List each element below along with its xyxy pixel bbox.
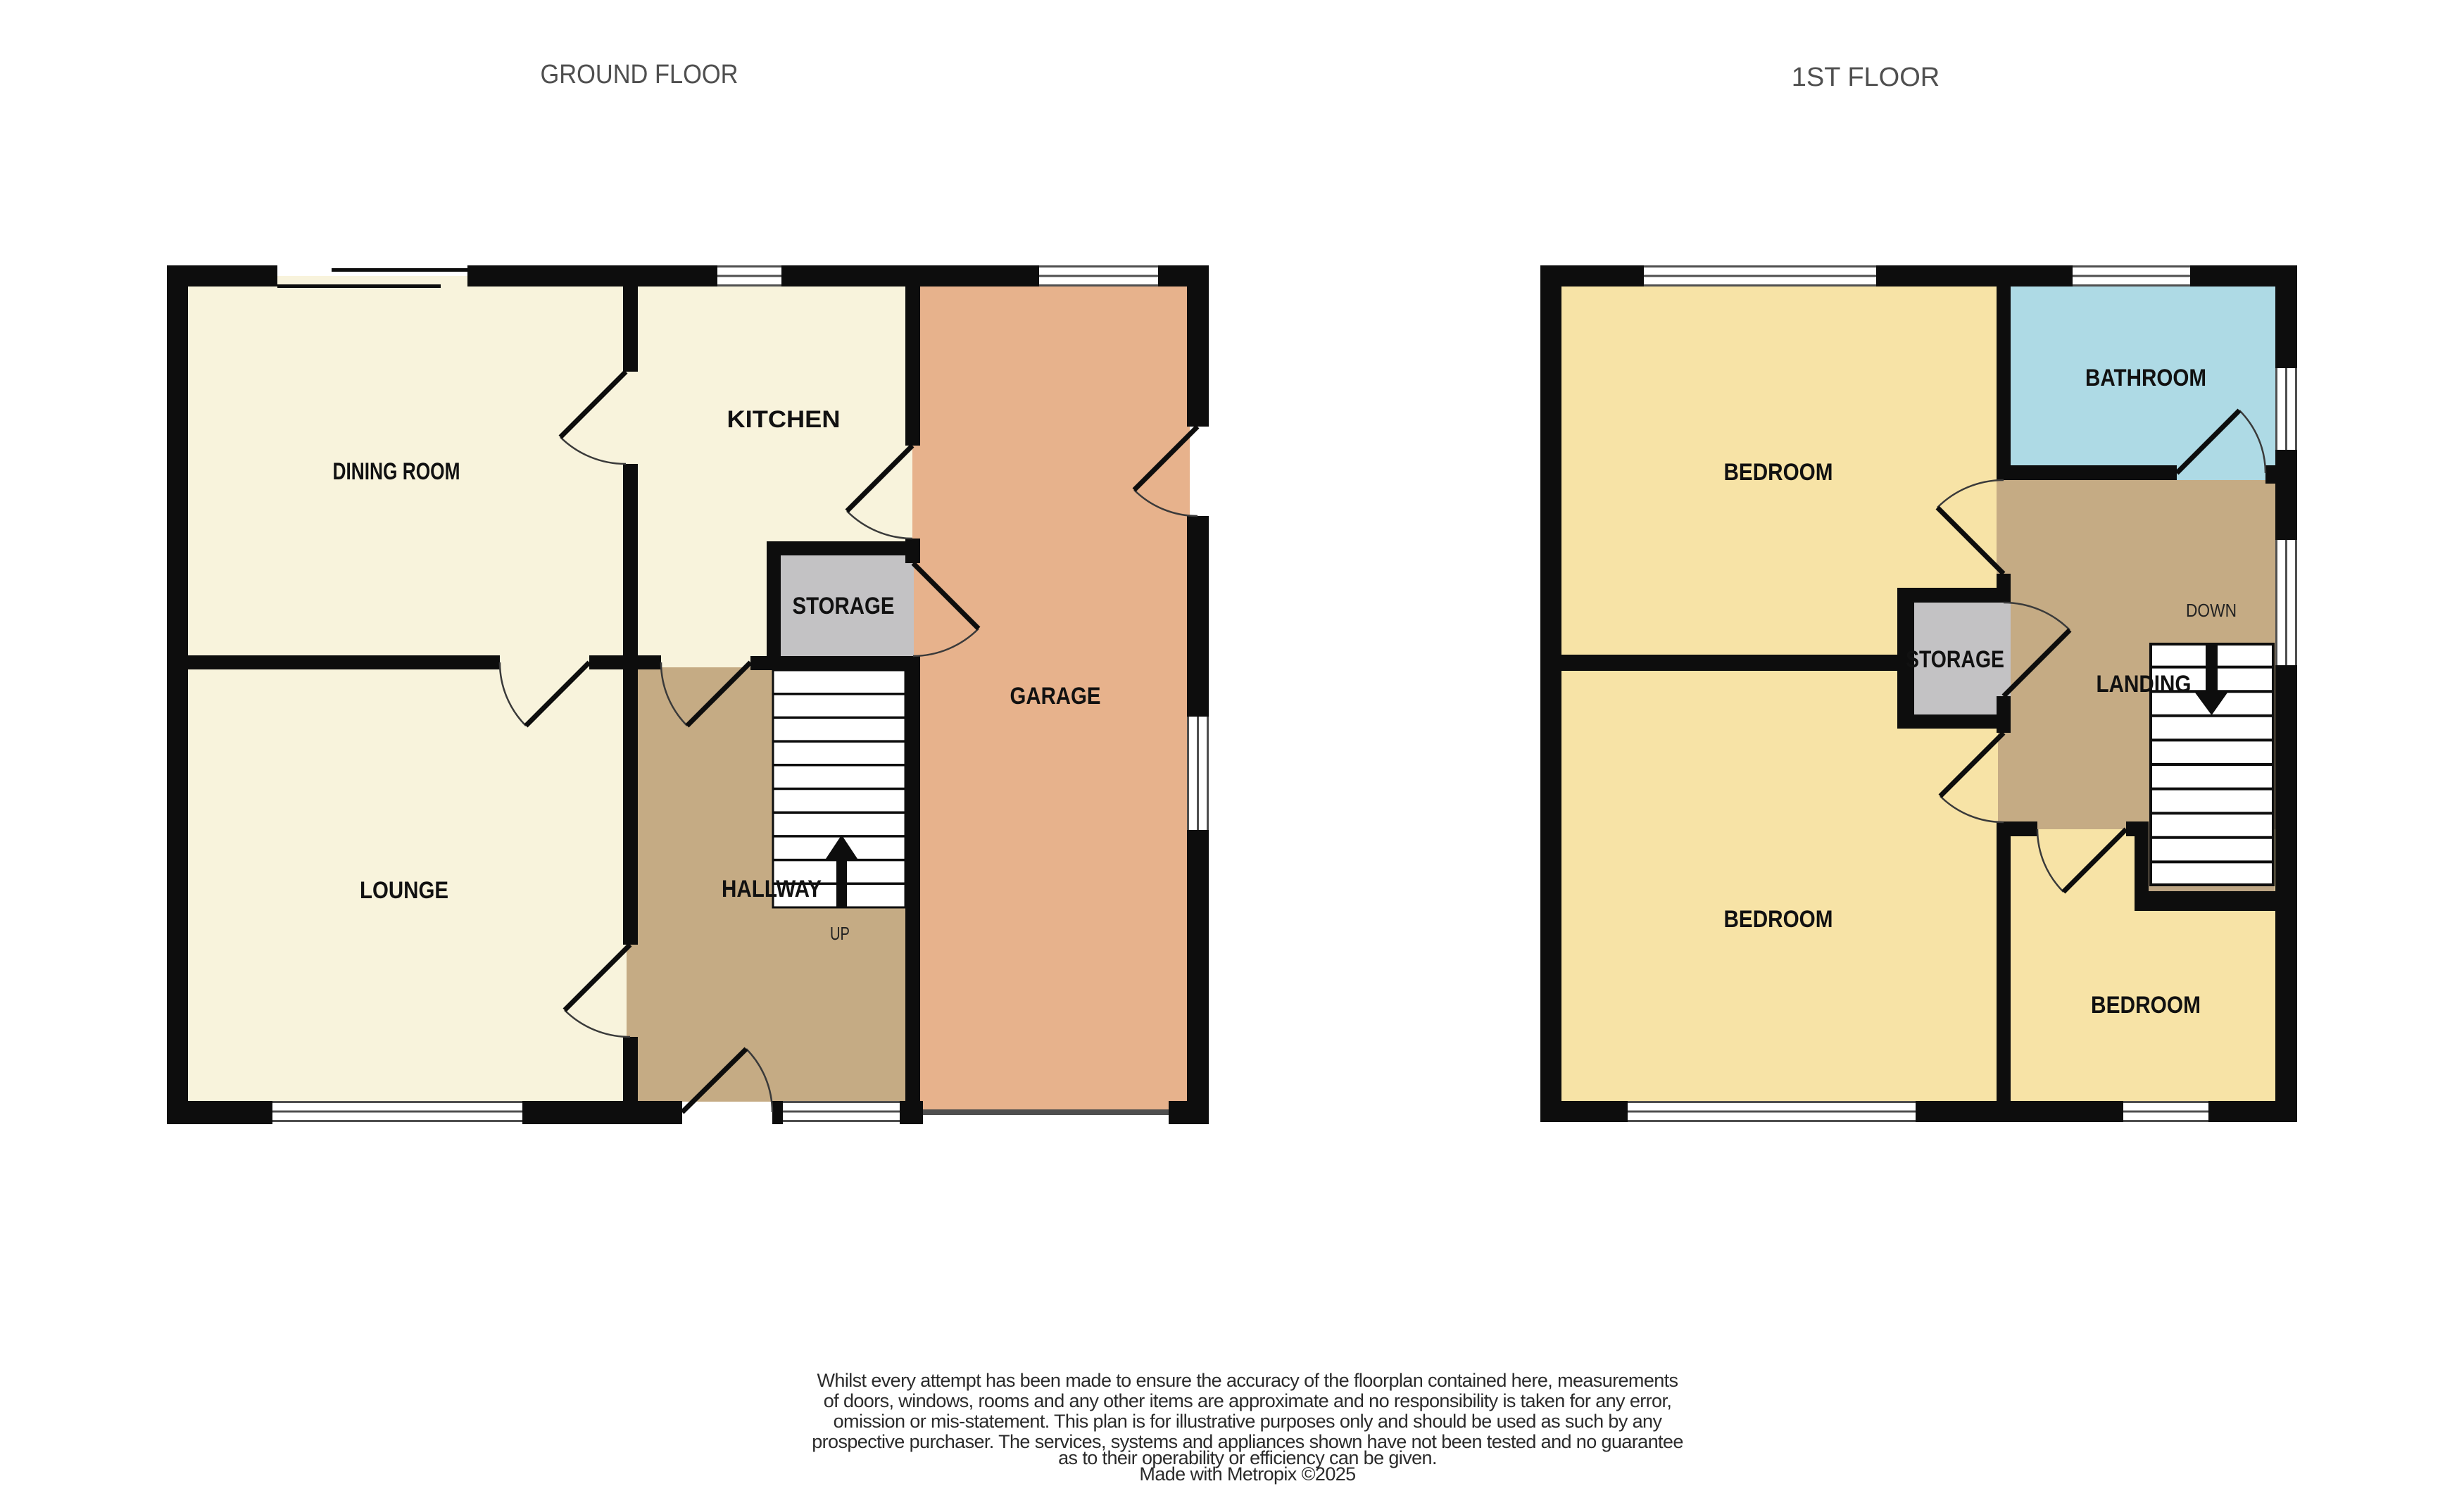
svg-text:KITCHEN: KITCHEN <box>727 406 841 433</box>
svg-text:BATHROOM: BATHROOM <box>2085 365 2206 391</box>
svg-text:omission or mis-statement. Thi: omission or mis-statement. This plan is … <box>834 1411 1663 1432</box>
svg-text:of doors, windows, rooms and a: of doors, windows, rooms and any other i… <box>824 1390 1672 1411</box>
svg-text:BEDROOM: BEDROOM <box>1724 906 1833 933</box>
svg-text:GROUND FLOOR: GROUND FLOOR <box>541 60 738 89</box>
svg-text:GARAGE: GARAGE <box>1010 683 1101 710</box>
svg-text:STORAGE: STORAGE <box>793 593 895 619</box>
svg-text:Made with Metropix ©2025: Made with Metropix ©2025 <box>1139 1463 1355 1485</box>
svg-text:BEDROOM: BEDROOM <box>1724 459 1833 486</box>
svg-text:DINING ROOM: DINING ROOM <box>333 458 460 485</box>
svg-text:STORAGE: STORAGE <box>1906 646 2004 673</box>
svg-text:HALLWAY: HALLWAY <box>722 876 822 902</box>
svg-text:Whilst every attempt has been: Whilst every attempt has been made to en… <box>817 1370 1678 1391</box>
svg-text:BEDROOM: BEDROOM <box>2091 992 2201 1019</box>
svg-text:DOWN: DOWN <box>2186 600 2237 621</box>
svg-text:UP: UP <box>830 923 850 944</box>
svg-text:LANDING: LANDING <box>2097 671 2192 698</box>
svg-text:LOUNGE: LOUNGE <box>360 877 448 904</box>
svg-text:1ST FLOOR: 1ST FLOOR <box>1792 63 1940 92</box>
